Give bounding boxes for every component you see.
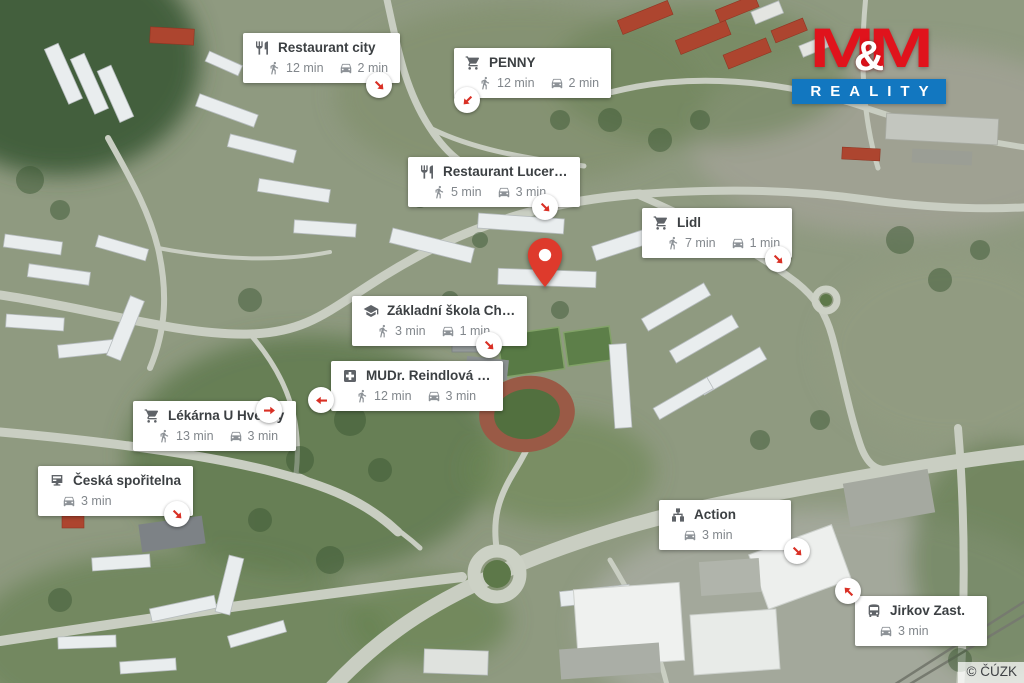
poi-direction-marker[interactable] bbox=[476, 332, 502, 358]
car-icon bbox=[427, 389, 441, 403]
poi-direction-marker[interactable] bbox=[366, 72, 392, 98]
poi-direction-marker[interactable] bbox=[256, 397, 282, 423]
poi-direction-marker[interactable] bbox=[835, 578, 861, 604]
arrow-icon bbox=[314, 393, 329, 408]
car-icon bbox=[497, 185, 511, 199]
logo-reality-bar: REALITY bbox=[792, 79, 946, 104]
poi-direction-marker[interactable] bbox=[454, 87, 480, 113]
arrow-icon bbox=[456, 89, 477, 110]
walk-time: 7 min bbox=[666, 235, 716, 251]
poi-card[interactable]: Jirkov Zast. 3 min bbox=[855, 596, 987, 646]
poi-title: MUDr. Reindlová … bbox=[366, 367, 491, 385]
school-icon bbox=[363, 303, 379, 319]
property-location-pin[interactable] bbox=[525, 236, 565, 289]
car-icon bbox=[550, 76, 564, 90]
walking-person-icon bbox=[376, 324, 390, 338]
poi-title: Restaurant city bbox=[278, 39, 376, 57]
restaurant-icon bbox=[254, 40, 270, 56]
bus-icon bbox=[866, 603, 882, 619]
walk-time: 12 min bbox=[478, 75, 535, 91]
poi-direction-marker[interactable] bbox=[765, 246, 791, 272]
drive-time: 3 min bbox=[427, 388, 477, 404]
car-icon bbox=[683, 528, 697, 542]
walk-time: 12 min bbox=[355, 388, 412, 404]
walking-person-icon bbox=[666, 236, 680, 250]
car-icon bbox=[441, 324, 455, 338]
mm-reality-logo: M & M REALITY bbox=[792, 24, 946, 104]
poi-title: Action bbox=[694, 506, 736, 524]
cart-icon bbox=[144, 408, 160, 424]
map-pin-icon bbox=[525, 236, 565, 289]
drive-time: 3 min bbox=[229, 428, 279, 444]
poi-direction-marker[interactable] bbox=[308, 387, 334, 413]
walk-time: 12 min bbox=[267, 60, 324, 76]
poi-title: PENNY bbox=[489, 54, 536, 72]
cart-icon bbox=[465, 55, 481, 71]
car-icon bbox=[62, 494, 76, 508]
poi-title: Základní škola Ch… bbox=[387, 302, 515, 320]
poi-card[interactable]: PENNY 12 min 2 min bbox=[454, 48, 611, 98]
arrow-icon bbox=[837, 580, 858, 601]
car-icon bbox=[229, 429, 243, 443]
walk-time: 13 min bbox=[157, 428, 214, 444]
arrow-icon bbox=[262, 403, 277, 418]
car-icon bbox=[731, 236, 745, 250]
walk-time: 3 min bbox=[376, 323, 426, 339]
poi-title: Lidl bbox=[677, 214, 701, 232]
arrow-icon bbox=[786, 540, 807, 561]
poi-title: Restaurant Lucer… bbox=[443, 163, 568, 181]
arrow-icon bbox=[166, 503, 187, 524]
poi-direction-marker[interactable] bbox=[784, 538, 810, 564]
walking-person-icon bbox=[157, 429, 171, 443]
logo-mm-text: M & M bbox=[792, 24, 946, 76]
map-attribution: © ČÚZK bbox=[958, 662, 1024, 683]
drive-time: 3 min bbox=[879, 623, 929, 639]
car-icon bbox=[879, 624, 893, 638]
logo-ampersand: & bbox=[854, 35, 884, 77]
arrow-icon bbox=[478, 334, 499, 355]
arrow-icon bbox=[534, 196, 555, 217]
restaurant-icon bbox=[419, 164, 435, 180]
walking-person-icon bbox=[355, 389, 369, 403]
sitemap-icon bbox=[670, 507, 686, 523]
walking-person-icon bbox=[432, 185, 446, 199]
walk-time: 5 min bbox=[432, 184, 482, 200]
atm-icon bbox=[49, 473, 65, 489]
walking-person-icon bbox=[478, 76, 492, 90]
poi-title: Jirkov Zast. bbox=[890, 602, 965, 620]
poi-title: Česká spořitelna bbox=[73, 472, 181, 490]
drive-time: 3 min bbox=[62, 493, 112, 509]
map-canvas[interactable]: Restaurant city 12 min 2 min PENNY 12 mi… bbox=[0, 0, 1024, 683]
health-icon bbox=[342, 368, 358, 384]
poi-card[interactable]: Action 3 min bbox=[659, 500, 791, 550]
poi-direction-marker[interactable] bbox=[532, 194, 558, 220]
poi-direction-marker[interactable] bbox=[164, 501, 190, 527]
drive-time: 2 min bbox=[550, 75, 600, 91]
poi-card[interactable]: Základní škola Ch… 3 min 1 min bbox=[352, 296, 527, 346]
cart-icon bbox=[653, 215, 669, 231]
arrow-icon bbox=[767, 248, 788, 269]
arrow-icon bbox=[368, 74, 389, 95]
drive-time: 3 min bbox=[683, 527, 733, 543]
walking-person-icon bbox=[267, 61, 281, 75]
car-icon bbox=[339, 61, 353, 75]
poi-card[interactable]: MUDr. Reindlová … 12 min 3 min bbox=[331, 361, 503, 411]
